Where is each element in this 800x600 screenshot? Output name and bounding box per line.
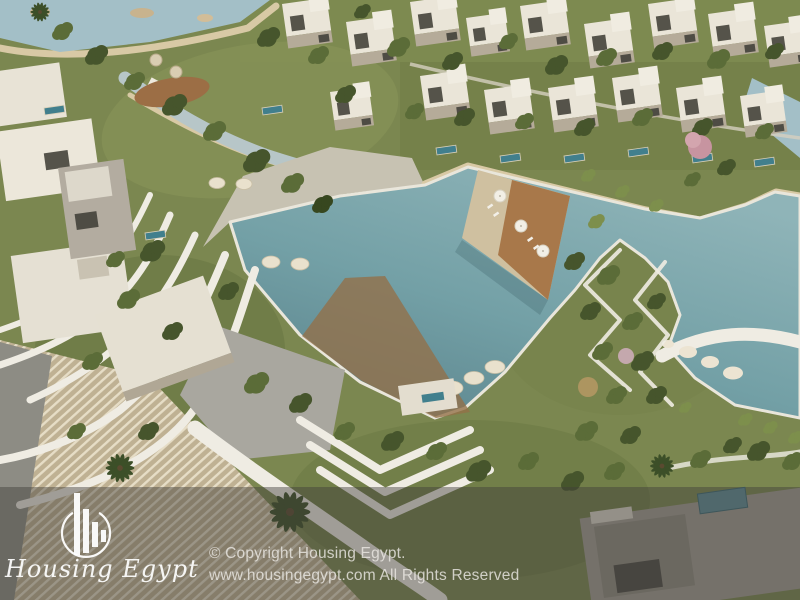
overlay-band — [0, 487, 800, 600]
umbrella-icon — [494, 190, 506, 202]
aerial-render — [0, 0, 800, 600]
umbrella-icon — [150, 54, 162, 66]
pink-shrub — [618, 348, 634, 364]
autumn-tree — [578, 377, 598, 397]
promo-image: Housing Egypt © Copyright Housing Egypt.… — [0, 0, 800, 600]
umbrella-icon — [515, 220, 527, 232]
gray-villa — [58, 159, 136, 259]
umbrella-icon — [170, 66, 182, 78]
